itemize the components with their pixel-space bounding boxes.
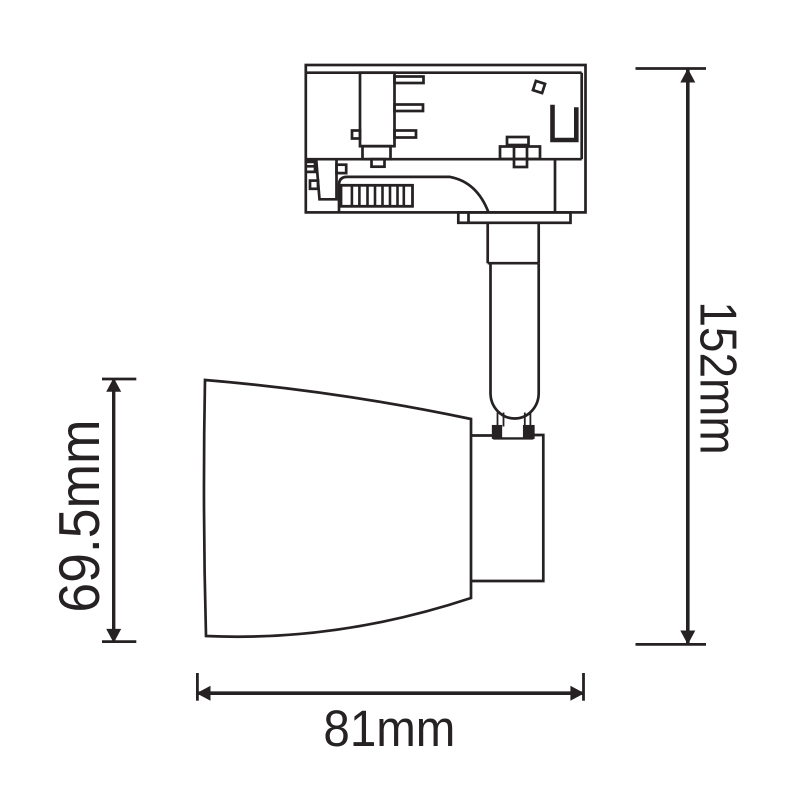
svg-text:69.5mm: 69.5mm bbox=[47, 419, 111, 612]
svg-text:81mm: 81mm bbox=[323, 700, 455, 757]
svg-text:152mm: 152mm bbox=[689, 301, 746, 454]
